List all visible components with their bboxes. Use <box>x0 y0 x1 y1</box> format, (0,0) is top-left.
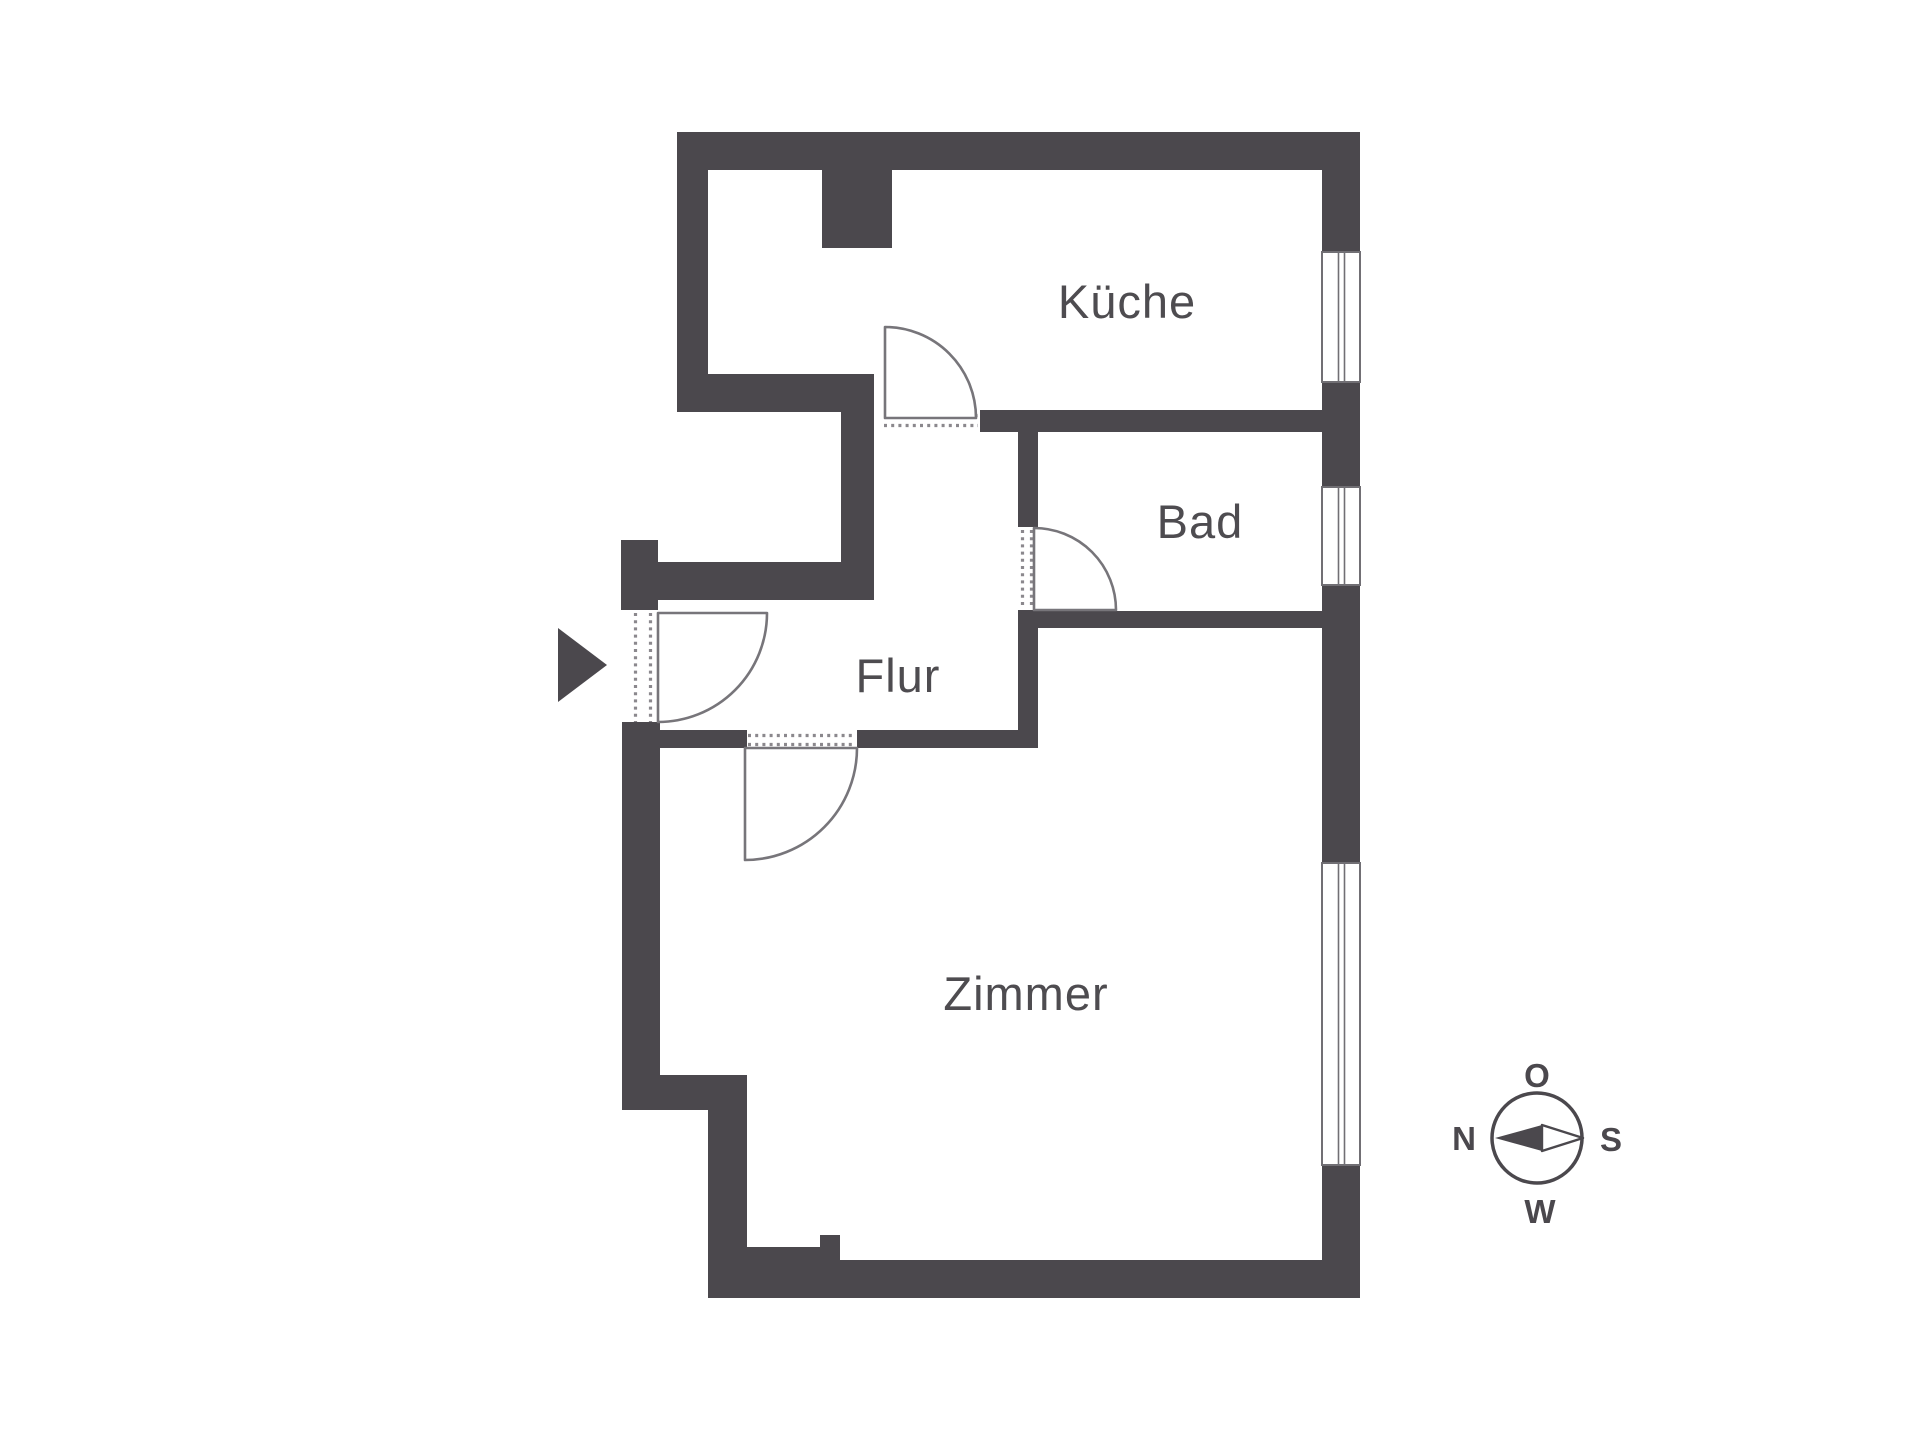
floor-plan-drawing: Küche Bad Flur Zimmer O S W N <box>0 0 1920 1429</box>
kueche-door-swing <box>885 327 976 418</box>
bad-door-swing <box>1034 528 1116 610</box>
room-label-kueche: Küche <box>1058 275 1196 328</box>
compass-label-top: O <box>1524 1057 1550 1094</box>
wall-right-segment-3 <box>1322 585 1360 863</box>
threshold-entry-door <box>636 613 651 722</box>
wall-bottom-step <box>708 1247 840 1261</box>
wall-top <box>677 132 1360 170</box>
wall-right-segment-2 <box>1322 382 1360 487</box>
wall-flur-top <box>658 562 874 600</box>
compass-label-right: S <box>1600 1121 1622 1158</box>
compass-label-left: N <box>1452 1120 1476 1157</box>
threshold-bad-door <box>1023 530 1032 608</box>
wall-bottom <box>708 1260 1360 1298</box>
wall-chimney-pier <box>822 170 892 248</box>
wall-left-step <box>622 1075 747 1110</box>
compass-needle-solid <box>1495 1125 1542 1151</box>
compass-rose-icon: O S W N <box>1452 1057 1622 1230</box>
zimmer-door-swing <box>745 748 857 860</box>
window-zimmer <box>1322 863 1360 1165</box>
wall-right-segment-1 <box>1322 132 1360 252</box>
entrance-arrow-icon <box>558 628 607 702</box>
room-label-bad: Bad <box>1157 495 1244 548</box>
wall-flur-zimmer-left <box>660 730 747 748</box>
wall-flur-zimmer-right <box>857 730 1018 748</box>
wall-bad-zimmer-divider <box>1018 611 1322 628</box>
compass-label-bottom: W <box>1524 1193 1556 1230</box>
window-bad <box>1322 487 1360 585</box>
threshold-zimmer-door <box>748 736 855 745</box>
room-label-zimmer: Zimmer <box>943 967 1108 1020</box>
wall-bottom-tab <box>820 1235 840 1249</box>
wall-bad-left-lower <box>1018 610 1038 748</box>
floor-plan-page: Küche Bad Flur Zimmer O S W N <box>0 0 1920 1429</box>
walls <box>621 132 1360 1298</box>
wall-right-segment-4 <box>1322 1165 1360 1298</box>
window-kueche <box>1322 252 1360 382</box>
wall-bad-left-upper <box>1018 420 1038 527</box>
entry-door-swing <box>658 613 767 722</box>
wall-nook-bottom <box>677 374 874 412</box>
room-label-flur: Flur <box>856 649 941 702</box>
compass-needle-outline <box>1542 1125 1583 1151</box>
wall-entry-pier <box>621 540 658 610</box>
wall-left-lower <box>622 722 660 1110</box>
